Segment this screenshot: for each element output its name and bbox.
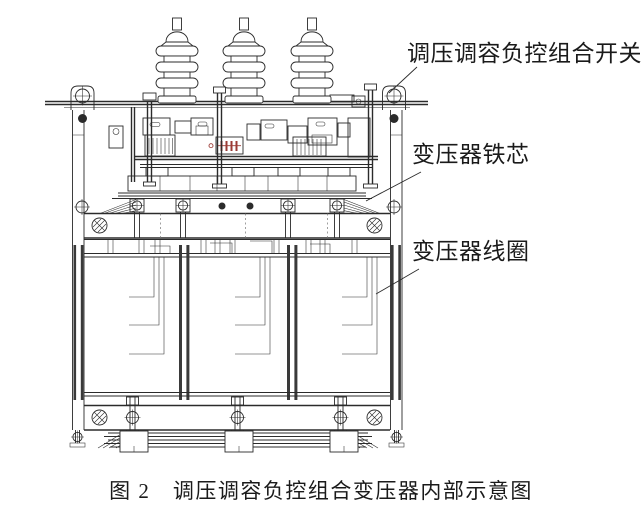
bolt-dot-icon: [78, 114, 87, 123]
coil-tap-steps: [235, 257, 270, 354]
top-core-clamp: [84, 199, 390, 240]
clamp-bolt-icon: [92, 218, 107, 233]
base-structure: [70, 430, 404, 452]
lead-wiring: [84, 240, 390, 254]
bolt-crosshair-icon: [385, 87, 404, 106]
bolt-dot-icon: [247, 203, 254, 210]
clamp-bolt-icon: [367, 410, 382, 425]
bolt-dot-icon: [219, 203, 226, 210]
callout-coil-label: 变压器线圈: [412, 239, 530, 264]
frame-columns: [73, 110, 403, 430]
bushing-insulator: [291, 18, 333, 103]
bolt-crosshair-icon: [390, 431, 403, 444]
figure-caption: 图 2 调压调容负控组合变压器内部示意图: [21, 475, 621, 505]
bolt-crosshair-icon: [333, 410, 349, 426]
bushing-insulator: [223, 18, 265, 103]
bolt-crosshair-icon: [331, 199, 344, 212]
clamp-bolt-icon: [92, 410, 107, 425]
coil-tap-steps: [129, 257, 164, 354]
bolt-crosshair-icon: [73, 87, 92, 106]
red-contact-detail: [209, 141, 241, 151]
bottom-core-clamp: [84, 397, 390, 436]
bushing-insulator: [156, 18, 198, 103]
bolt-crosshair-icon: [282, 199, 295, 212]
clamp-bolt-icon: [367, 218, 382, 233]
figure-page: 调压调容负控组合开关 变压器铁芯 变压器线圈 图 2 调压调容负控组合变压器内部…: [0, 0, 642, 513]
coil-windings: [74, 245, 401, 400]
callout-core-label: 变压器铁芯: [412, 142, 530, 167]
leader-core: [366, 172, 421, 201]
bolt-crosshair-icon: [386, 199, 402, 215]
leader-coil: [376, 269, 419, 294]
leader-switch: [389, 67, 417, 93]
bolt-crosshair-icon: [230, 410, 246, 426]
bolt-crosshair-icon: [74, 199, 90, 215]
coil-tap-steps: [342, 257, 377, 354]
bolt-crosshair-icon: [125, 410, 141, 426]
bolt-crosshair-icon: [177, 199, 190, 212]
bushings: [156, 18, 333, 103]
callout-switch-label: 调压调容负控组合开关: [407, 41, 642, 66]
bolt-crosshair-icon: [71, 431, 84, 444]
transformer-drawing: [0, 0, 642, 513]
